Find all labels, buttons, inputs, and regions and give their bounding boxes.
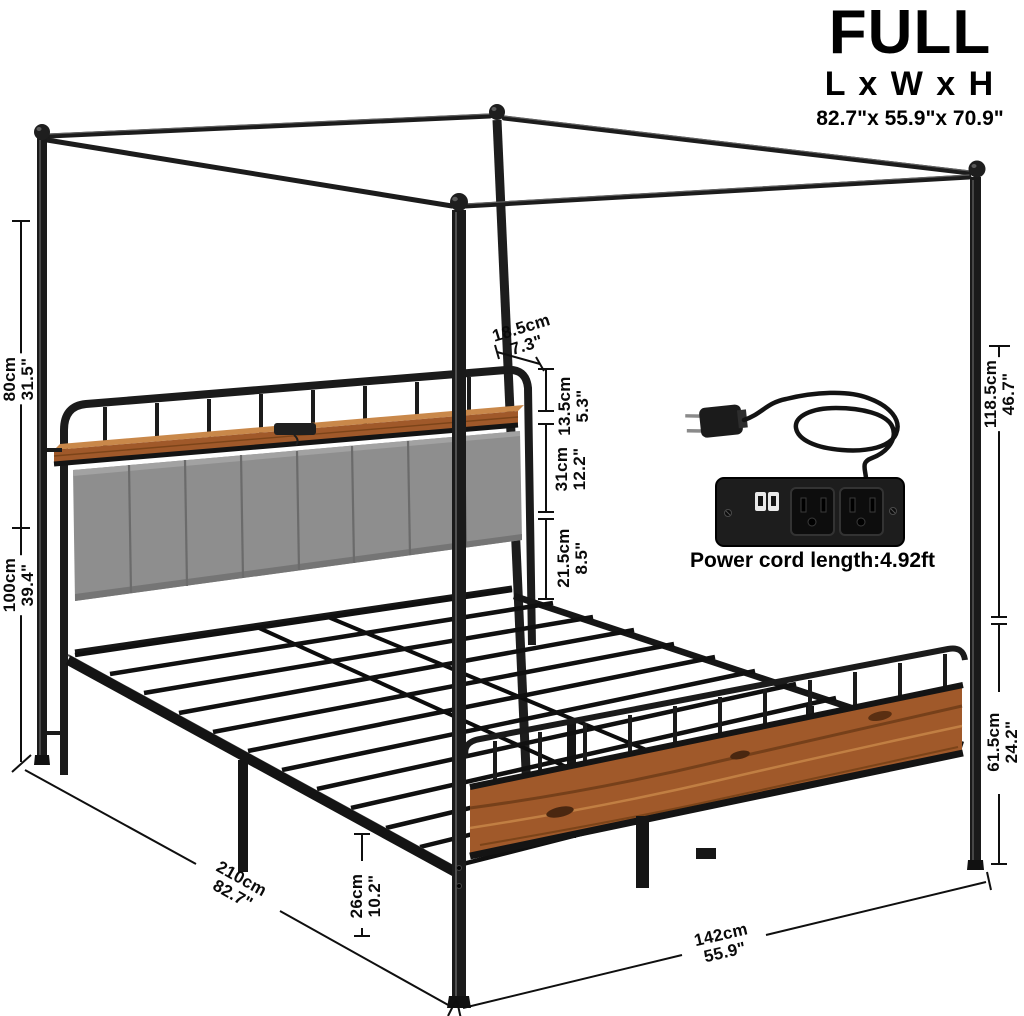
power-plug-icon xyxy=(685,403,749,439)
dim-label-headboard-total: 100cm 39.4" xyxy=(1,555,37,615)
power-cord xyxy=(744,393,898,478)
dim-label-canopy-post-upper: 80cm 31.5" xyxy=(1,354,37,405)
dim-label-headboard-rail: 13.5cm 5.3" xyxy=(556,373,592,438)
footboard-center-leg xyxy=(636,816,649,888)
finial-ball xyxy=(969,161,986,178)
dim-label-under-bed-clearance: 26cm 10.2" xyxy=(348,871,384,922)
size-dimension-label: L x W x H xyxy=(796,66,1024,103)
bed-illustration xyxy=(0,0,1024,1016)
size-dimension-value: 82.7"x 55.9"x 70.9" xyxy=(796,106,1024,131)
finial-ball xyxy=(34,124,50,140)
power-cord-illustration xyxy=(685,393,904,546)
dim-label-headboard-lower: 21.5cm 8.5" xyxy=(555,525,591,590)
side-rail-leg xyxy=(238,760,248,872)
dim-label-canopy-post-foot: 118.5cm 46.7" xyxy=(982,357,1018,431)
footboard-wood-panel xyxy=(470,685,963,856)
power-cord-caption: Power cord length:4.92ft xyxy=(690,549,934,573)
canopy-post-head-left xyxy=(34,124,62,765)
outlet-socket-icon xyxy=(791,488,834,535)
outlet-socket-icon xyxy=(840,488,883,535)
power-outlet-icon xyxy=(716,478,904,546)
size-header: FULL L x W x H 82.7"x 55.9"x 70.9" xyxy=(796,2,1024,132)
finial-ball xyxy=(450,193,468,211)
size-name: FULL xyxy=(796,2,1024,64)
footboard xyxy=(465,648,965,888)
product-dimension-diagram: FULL L x W x H 82.7"x 55.9"x 70.9" Power… xyxy=(0,0,1024,1016)
dim-label-headboard-cushion: 31cm 12.2" xyxy=(553,444,589,495)
finial-ball xyxy=(489,104,505,120)
canopy-post-foot-right xyxy=(967,161,986,871)
dim-label-footboard-height: 61.5cm 24.2" xyxy=(985,709,1021,774)
